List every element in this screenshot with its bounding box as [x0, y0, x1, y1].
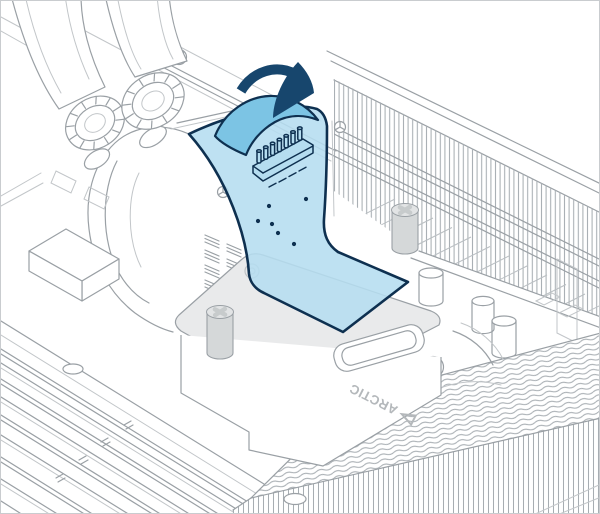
tube-right [105, 1, 187, 77]
illustration-frame: ARCTIC [0, 0, 600, 514]
housing-screw-right [335, 122, 346, 133]
board-hole [63, 364, 83, 374]
standoff-right [392, 204, 419, 255]
tube-collar-right [111, 61, 195, 141]
standoff-left [207, 306, 234, 360]
tube-left [11, 1, 105, 109]
installation-diagram: ARCTIC [1, 1, 600, 514]
bracket-hole [284, 494, 306, 505]
